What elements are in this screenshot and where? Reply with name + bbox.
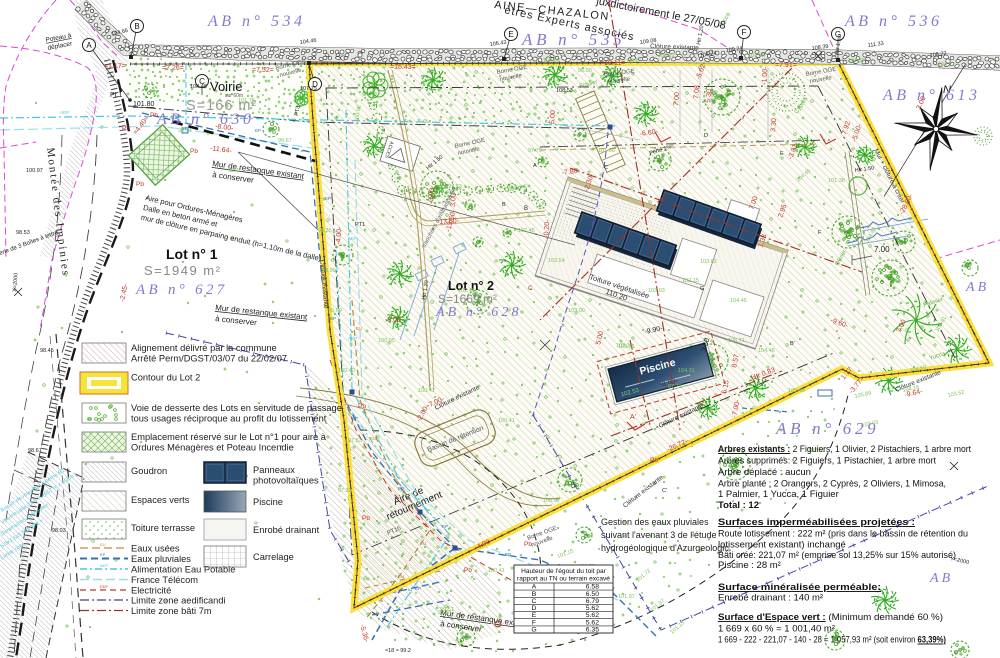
svg-text:98.53: 98.53 [16, 230, 30, 236]
svg-text:lotissement existant) inchangé: lotissement existant) inchangé [718, 540, 846, 551]
svg-text:A: A [86, 41, 92, 50]
svg-text:EP: EP [255, 128, 261, 133]
svg-text:101.38: 101.38 [828, 178, 845, 184]
svg-text:101.97: 101.97 [618, 594, 635, 600]
svg-text:Piscine: Piscine [253, 497, 283, 507]
svg-text:PT1: PT1 [355, 222, 365, 228]
svg-text:7.00: 7.00 [874, 245, 890, 254]
svg-text:1 669 x 60 % = 1 001,40 m²: 1 669 x 60 % = 1 001,40 m² [718, 624, 835, 635]
svg-text:100.97: 100.97 [543, 498, 560, 504]
svg-text:EU: EU [370, 436, 376, 441]
svg-text:Pb: Pb [358, 403, 366, 410]
svg-text:AB: AB [965, 280, 989, 295]
svg-text:C: C [528, 285, 533, 292]
svg-text:Electricité: Electricité [131, 586, 171, 596]
svg-text:G: G [531, 627, 536, 634]
svg-text:Limite zone aedificandi: Limite zone aedificandi [131, 596, 226, 606]
svg-text:A: A [533, 163, 537, 169]
svg-text:98.87: 98.87 [628, 58, 642, 64]
svg-text:98.99: 98.99 [322, 268, 336, 274]
svg-text:EP: EP [100, 552, 106, 557]
svg-text:107.86: 107.86 [748, 53, 765, 59]
svg-text:99.71: 99.71 [178, 128, 192, 134]
svg-text:EU: EU [398, 574, 404, 579]
svg-text:7.08: 7.08 [693, 85, 701, 99]
svg-text:F: F [742, 28, 747, 37]
svg-text:100.41: 100.41 [498, 418, 515, 424]
svg-text:EDF: EDF [100, 584, 109, 589]
svg-text:97.73: 97.73 [668, 384, 682, 390]
svg-text:Surface d'Espace vert : (Minim: Surface d'Espace vert : (Minimum demandé… [718, 612, 943, 623]
svg-text:108.39: 108.39 [848, 58, 865, 64]
svg-text:99.69: 99.69 [328, 308, 342, 314]
svg-text:AEP: AEP [348, 236, 357, 241]
svg-text:-3.00-: -3.00- [385, 317, 404, 324]
svg-text:Arrêté Perm/DGST/03/07 du 22/0: Arrêté Perm/DGST/03/07 du 22/02/07 [131, 354, 287, 364]
svg-text:98.03: 98.03 [52, 528, 66, 534]
svg-text:EU: EU [420, 541, 426, 546]
svg-text:EP: EP [442, 524, 448, 529]
svg-text:S=1669 m²: S=1669 m² [438, 292, 497, 306]
svg-text:EU: EU [100, 542, 106, 547]
svg-text:Arbres existants : 2 Figuiers,: Arbres existants : 2 Figuiers, 1 Olivier… [718, 444, 971, 455]
svg-text:6.50: 6.50 [586, 591, 599, 598]
svg-text:Voirie: Voirie [210, 79, 243, 94]
svg-text:AB n° 613: AB n° 613 [882, 87, 980, 104]
svg-text:E: E [508, 30, 513, 39]
svg-text:D: D [532, 605, 537, 612]
svg-text:106.71: 106.71 [728, 338, 745, 344]
svg-text:1 Palmier, 1 Yucca, 1 Figuier: 1 Palmier, 1 Yucca, 1 Figuier [718, 489, 839, 500]
svg-text:Ordures Ménagères et Poteau In: Ordures Ménagères et Poteau Incendie [131, 443, 294, 453]
svg-text:AEP: AEP [100, 563, 108, 568]
svg-text:tous usages réciproque au prof: tous usages réciproque au profit du loti… [131, 414, 327, 424]
svg-text:AB n° 534: AB n° 534 [207, 13, 305, 30]
svg-text:B: B [502, 202, 506, 208]
svg-text:Pb: Pb [524, 541, 532, 548]
svg-text:Panneaux: Panneaux [253, 465, 295, 475]
svg-text:98.45: 98.45 [40, 348, 54, 354]
svg-text:C: C [604, 165, 608, 171]
svg-text:=16.43=: =16.43= [390, 64, 416, 71]
svg-text:104.48: 104.48 [190, 84, 207, 90]
svg-text:102.54: 102.54 [548, 258, 565, 264]
svg-text:≈18 ≈ 99.2: ≈18 ≈ 99.2 [385, 648, 411, 654]
svg-text:Total : 12: Total : 12 [718, 500, 759, 511]
svg-text:97.53: 97.53 [448, 184, 462, 190]
svg-text:101.75: 101.75 [238, 98, 255, 104]
svg-text:Pb: Pb [122, 125, 130, 132]
svg-text:100.40: 100.40 [338, 368, 355, 374]
svg-text:96.00: 96.00 [578, 68, 592, 74]
svg-text:France Télécom: France Télécom [131, 575, 198, 585]
svg-text:=7.52=: =7.52= [252, 67, 274, 74]
svg-text:S=1949 m²: S=1949 m² [144, 263, 221, 278]
svg-text:104.31: 104.31 [678, 368, 695, 374]
svg-text:5.62: 5.62 [586, 612, 599, 619]
svg-text:108.22: 108.22 [938, 62, 955, 68]
svg-text:AEP: AEP [60, 110, 69, 115]
svg-text:97.75: 97.75 [528, 148, 542, 154]
svg-text:EP: EP [398, 486, 404, 491]
svg-text:99.67: 99.67 [278, 138, 292, 144]
svg-text:=1.17=: =1.17= [104, 63, 126, 70]
svg-text:AB n° 627: AB n° 627 [135, 282, 228, 298]
svg-text:C: C [532, 598, 537, 605]
svg-text:6.79: 6.79 [586, 598, 599, 605]
svg-text:Arbre déplacé : aucun: Arbre déplacé : aucun [718, 467, 811, 478]
svg-text:AEP: AEP [348, 336, 357, 341]
svg-text:EP: EP [330, 316, 336, 321]
svg-text:photovoltaïques: photovoltaïques [253, 476, 319, 486]
svg-text:104.45: 104.45 [730, 298, 747, 304]
svg-text:103.62: 103.62 [700, 259, 717, 265]
svg-text:AEP: AEP [300, 118, 309, 123]
svg-text:AB n° 536: AB n° 536 [844, 13, 942, 30]
svg-text:C': C' [662, 488, 667, 494]
svg-text:103.00: 103.00 [568, 308, 585, 314]
svg-text:Limite zone bâti 7m: Limite zone bâti 7m [131, 606, 212, 616]
svg-text:Eaux pluviales: Eaux pluviales [131, 554, 191, 564]
svg-text:100.41: 100.41 [418, 388, 435, 394]
svg-text:Surfaces imperméabilisées proj: Surfaces imperméabilisées projetées : [718, 517, 915, 528]
svg-text:108.22: 108.22 [658, 53, 675, 59]
svg-text:Eaux usées: Eaux usées [131, 544, 180, 554]
svg-text:Pb: Pb [190, 148, 198, 155]
svg-text:3.30: 3.30 [770, 118, 778, 132]
svg-text:108.53: 108.53 [556, 88, 573, 94]
svg-text:Contour du Lot 2: Contour du Lot 2 [131, 373, 200, 383]
svg-text:EP: EP [175, 114, 181, 119]
svg-text:-3.00-: -3.00- [428, 185, 436, 204]
svg-text:97.33: 97.33 [338, 488, 352, 494]
svg-text:Toiture terrasse: Toiture terrasse [131, 523, 195, 533]
svg-text:B: B [134, 22, 139, 31]
svg-text:A: A [532, 584, 537, 591]
svg-text:E: E [780, 151, 784, 157]
svg-text:PL1: PL1 [110, 92, 123, 99]
svg-text:EU: EU [356, 326, 362, 331]
svg-text:=7.26=: =7.26= [162, 65, 184, 72]
svg-text:98.61: 98.61 [28, 448, 42, 454]
svg-text:7.00: 7.00 [673, 92, 681, 106]
svg-text:5.00: 5.00 [549, 110, 557, 124]
svg-text:EP: EP [505, 552, 511, 557]
svg-text:Enrobé drainant : 140 m²: Enrobé drainant : 140 m² [718, 593, 823, 604]
svg-text:99.51: 99.51 [440, 607, 454, 613]
svg-text:101.80: 101.80 [133, 101, 155, 108]
svg-text:Pb: Pb [136, 181, 144, 188]
svg-text:101.66: 101.66 [598, 148, 615, 154]
svg-text:103.31: 103.31 [618, 344, 635, 350]
svg-text:5.62: 5.62 [586, 605, 599, 612]
svg-text:99.35: 99.35 [318, 228, 332, 234]
svg-text:5.62: 5.62 [586, 619, 599, 626]
svg-text:109.08: 109.08 [543, 58, 560, 64]
svg-text:Goudron: Goudron [131, 466, 167, 476]
svg-text:Pb: Pb [362, 515, 370, 522]
svg-text:Piscine : 28 m²: Piscine : 28 m² [718, 560, 781, 571]
svg-text:E: E [532, 612, 537, 619]
svg-text:F: F [532, 619, 536, 626]
svg-text:Alignement délivré par la comm: Alignement délivré par la commune [131, 343, 277, 353]
svg-text:Carrelage: Carrelage [253, 552, 294, 562]
svg-text:AB: AB [929, 571, 953, 586]
svg-text:5.30: 5.30 [705, 89, 713, 103]
svg-text:Surface minéralisée perméable:: Surface minéralisée perméable: [718, 582, 881, 593]
svg-text:100.95: 100.95 [378, 338, 395, 344]
svg-text:107.75: 107.75 [300, 86, 317, 92]
svg-text:102.45: 102.45 [518, 228, 535, 234]
svg-text:Arbres supprimés: 2 Figuiers,: Arbres supprimés: 2 Figuiers, 1 Pistachi… [718, 456, 936, 467]
svg-text:=19.11=: =19.11= [600, 60, 625, 67]
svg-text:EP: EP [352, 416, 358, 421]
svg-text:B': B' [790, 341, 795, 347]
svg-text:6.58: 6.58 [586, 584, 599, 591]
svg-text:Hauteur de l'égout du toit par: Hauteur de l'égout du toit par [521, 568, 607, 575]
svg-text:suivant l'avenant 3 de l'étude: suivant l'avenant 3 de l'étude [601, 530, 717, 540]
svg-text:102.46: 102.46 [458, 288, 475, 294]
svg-text:98.45: 98.45 [228, 168, 242, 174]
svg-text:102.15: 102.15 [682, 278, 699, 284]
svg-text:Pb: Pb [464, 567, 472, 574]
svg-text:100.41: 100.41 [488, 568, 505, 574]
svg-text:D: D [704, 133, 708, 139]
svg-text:B: B [532, 591, 537, 598]
svg-text:rapport au TN ou terrain excav: rapport au TN ou terrain excavé [517, 576, 610, 583]
svg-text:A': A' [630, 414, 636, 421]
svg-text:G: G [700, 286, 704, 292]
svg-text:B: B [524, 206, 528, 212]
svg-text:104.46: 104.46 [758, 348, 775, 354]
svg-text:Route lotissement : 222 m² (pr: Route lotissement : 222 m² (pris dans le… [718, 529, 968, 540]
svg-text:AB n° 628: AB n° 628 [435, 305, 522, 320]
svg-text:Arbre planté : 2 Orangers, 2 C: Arbre planté : 2 Orangers, 2 Cyprès, 2 O… [718, 479, 946, 490]
svg-text:100.97: 100.97 [26, 168, 43, 174]
svg-text:Espaces verts: Espaces verts [131, 495, 190, 505]
svg-text:EP: EP [325, 196, 331, 201]
svg-text:Emplacement réservé sur le Lot: Emplacement réservé sur le Lot n°1 pour … [131, 432, 327, 442]
svg-text:Enrobé drainant: Enrobé drainant [253, 525, 320, 535]
svg-text:6.35: 6.35 [586, 627, 599, 634]
svg-text:=7.91=: =7.91= [775, 62, 797, 69]
svg-text:Gestion des eaux pluviales: Gestion des eaux pluviales [601, 517, 709, 527]
svg-text:hydrogéologique d'Azurgeologic: hydrogéologique d'Azurgeologic. [601, 543, 731, 553]
svg-text:97.53: 97.53 [348, 438, 362, 444]
svg-text:Voie de desserte des Lots en s: Voie de desserte des Lots en servitude d… [131, 403, 342, 413]
svg-text:EP: EP [415, 586, 421, 591]
svg-text:105.49: 105.49 [788, 388, 805, 394]
svg-text:Lot n° 1: Lot n° 1 [166, 246, 218, 262]
svg-text:1 669 - 222 - 221,07 - 140 - 2: 1 669 - 222 - 221,07 - 140 - 28 = 1 057,… [718, 635, 946, 646]
svg-text:Pb: Pb [650, 457, 658, 464]
svg-text:103.93: 103.93 [648, 288, 665, 294]
